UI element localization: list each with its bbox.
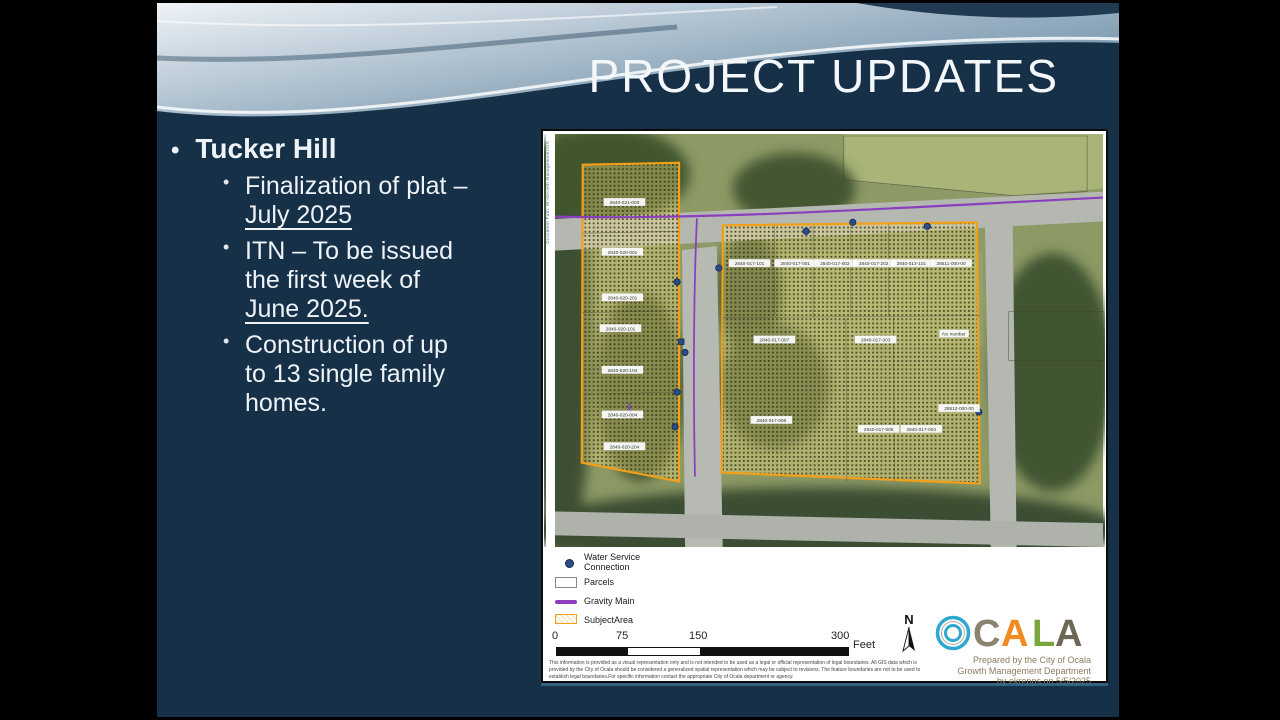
scale-tick-75: 75 [616, 630, 628, 642]
sub-bullet-3: Construction of up to 13 single family h… [223, 331, 531, 418]
parcel-label: 2840-020-101 [600, 324, 642, 332]
subject-parcel-west [582, 163, 679, 482]
legend-subjectarea-swatch [555, 614, 577, 624]
north-arrow: N [898, 612, 920, 653]
parcel-label: 2840-020-104 [602, 366, 644, 374]
legend-gravity-label: Gravity Main [584, 596, 635, 606]
logo-letter: L [1032, 613, 1055, 653]
legend-subjectarea-label: SubjectArea [584, 615, 633, 625]
scale-bar-segment [627, 648, 701, 655]
legend-parcels-label: Parcels [584, 577, 614, 587]
north-label: N [904, 612, 913, 627]
svg-text:2840-020-104: 2840-020-104 [608, 368, 638, 374]
aerial-map: 2840-021-003 2840-020-001 2840-020-201 2… [544, 134, 1105, 547]
bullet-dot [223, 172, 245, 230]
parcel-label: 2840-020-001 [602, 248, 644, 256]
legend-water-label: Water Service Connection [584, 552, 640, 572]
legend-gravity-swatch [555, 600, 577, 604]
parcel-label: 2840-017-001 [774, 259, 816, 267]
svg-text:2840-017-002: 2840-017-002 [820, 261, 850, 267]
parcel-label: 2840-020-204 [604, 442, 646, 450]
scale-tick-0: 0 [552, 630, 558, 642]
parcel-label: 2840-013-101 [891, 259, 933, 267]
map-bottom-edge [541, 683, 1108, 686]
sub-bullet-line: ITN – To be issued [245, 237, 453, 265]
map-margin-text: Document Path: W:\Growth Management\GIS [545, 141, 550, 244]
svg-text:2840-017-001: 2840-017-001 [780, 261, 810, 267]
svg-text:2840-021-003: 2840-021-003 [610, 200, 640, 206]
svg-text:2840-017-007: 2840-017-007 [760, 338, 790, 344]
sub-bullet-1: Finalization of plat – July 2025 [223, 172, 531, 230]
scale-bar [556, 647, 849, 656]
parcel-label: 2840-017-003 [855, 336, 897, 344]
svg-text:2840-017-004: 2840-017-004 [907, 427, 937, 433]
parcel-label: 2840-017-101 [729, 259, 771, 267]
scale-tick-150: 150 [689, 630, 707, 642]
svg-text:2840-020-201: 2840-020-201 [608, 295, 638, 301]
sub-bullet-line: homes. [245, 389, 327, 417]
sub-bullet-line: Finalization of plat – [245, 172, 467, 200]
scale-bar-segment [701, 648, 848, 655]
bullet-dot [223, 237, 245, 324]
legend-water-dot-icon [565, 559, 574, 568]
parcel-label: 2840-017-008 [751, 416, 793, 424]
scale-tick-300: 300 [831, 630, 849, 642]
disclaimer-line: provided by the City of Ocala should be … [549, 667, 979, 674]
svg-text:2840-017-202: 2840-017-202 [859, 261, 889, 267]
svg-text:2840-020-001: 2840-020-001 [608, 250, 638, 256]
svg-text:2840-017-005: 2840-017-005 [864, 427, 894, 433]
logo-o-inner-ring [946, 626, 961, 641]
svg-text:No number: No number [942, 332, 966, 338]
parcel-label: 2840-017-202 [853, 259, 895, 267]
sub-bullet-line-underlined: July 2025 [245, 201, 352, 229]
disclaimer-line: This information is provided as a visual… [549, 660, 979, 667]
parcel-label: 2840-020-004 [602, 410, 644, 418]
sub-bullet-line: to 13 single family [245, 360, 445, 388]
parcel-label: 2840-017-007 [754, 336, 796, 344]
sub-bullet-line-underlined: June 2025. [245, 295, 369, 323]
svg-text:2840-020-004: 2840-020-004 [608, 413, 638, 419]
sub-bullet-line: Construction of up [245, 331, 448, 359]
logo-letter: C [973, 613, 1000, 653]
parcel-label: No number [939, 330, 969, 338]
parcel-label: 28511-000-00 [930, 259, 972, 267]
logo-letter: A [1001, 613, 1028, 653]
parcel-label: 2840-017-005 [858, 425, 900, 433]
bullet-dot [171, 133, 195, 165]
svg-text:28512-000-00: 28512-000-00 [944, 406, 974, 412]
bullet-heading: Tucker Hill [171, 133, 531, 165]
svg-text:2840-013-101: 2840-013-101 [897, 261, 927, 267]
svg-text:2840-017-101: 2840-017-101 [735, 261, 765, 267]
logo-letter: A [1055, 613, 1082, 653]
slide: PROJECT UPDATES Tucker Hill Finalization… [157, 3, 1119, 717]
ocala-logo: C A L A [935, 613, 1105, 653]
parcel-label: 2840-021-003 [604, 198, 646, 206]
parcel-label: 28512-000-00 [938, 404, 980, 412]
disclaimer-line: establish legal boundaries.For specific … [549, 674, 979, 681]
slide-title: PROJECT UPDATES [589, 49, 1059, 103]
map-figure: 2840-021-003 2840-020-001 2840-020-201 2… [541, 129, 1108, 683]
svg-text:2840-017-003: 2840-017-003 [861, 338, 891, 344]
sub-bullet-line: the first week of [245, 266, 420, 294]
bullet-dot [223, 331, 245, 418]
north-arrow-icon [901, 627, 917, 653]
bullet-list: Tucker Hill Finalization of plat – July … [171, 133, 531, 418]
map-disclaimer: This information is provided as a visual… [549, 660, 979, 681]
sub-bullet-2: ITN – To be issued the first week of Jun… [223, 237, 531, 324]
svg-text:2840-020-101: 2840-020-101 [606, 326, 636, 332]
parcel-label: 2840-017-004 [900, 425, 942, 433]
parcel-label: 2840-020-201 [602, 293, 644, 301]
scale-bar-segment [557, 648, 627, 655]
svg-text:28511-000-00: 28511-000-00 [936, 261, 966, 267]
screen: PROJECT UPDATES Tucker Hill Finalization… [0, 0, 1280, 720]
svg-text:2840-020-204: 2840-020-204 [610, 444, 640, 450]
svg-text:2840-017-008: 2840-017-008 [757, 418, 787, 424]
parcel-label: 2840-017-002 [814, 259, 856, 267]
legend-parcels-swatch [555, 577, 577, 588]
bullet-heading-text: Tucker Hill [195, 133, 336, 165]
scale-unit: Feet [853, 639, 875, 651]
